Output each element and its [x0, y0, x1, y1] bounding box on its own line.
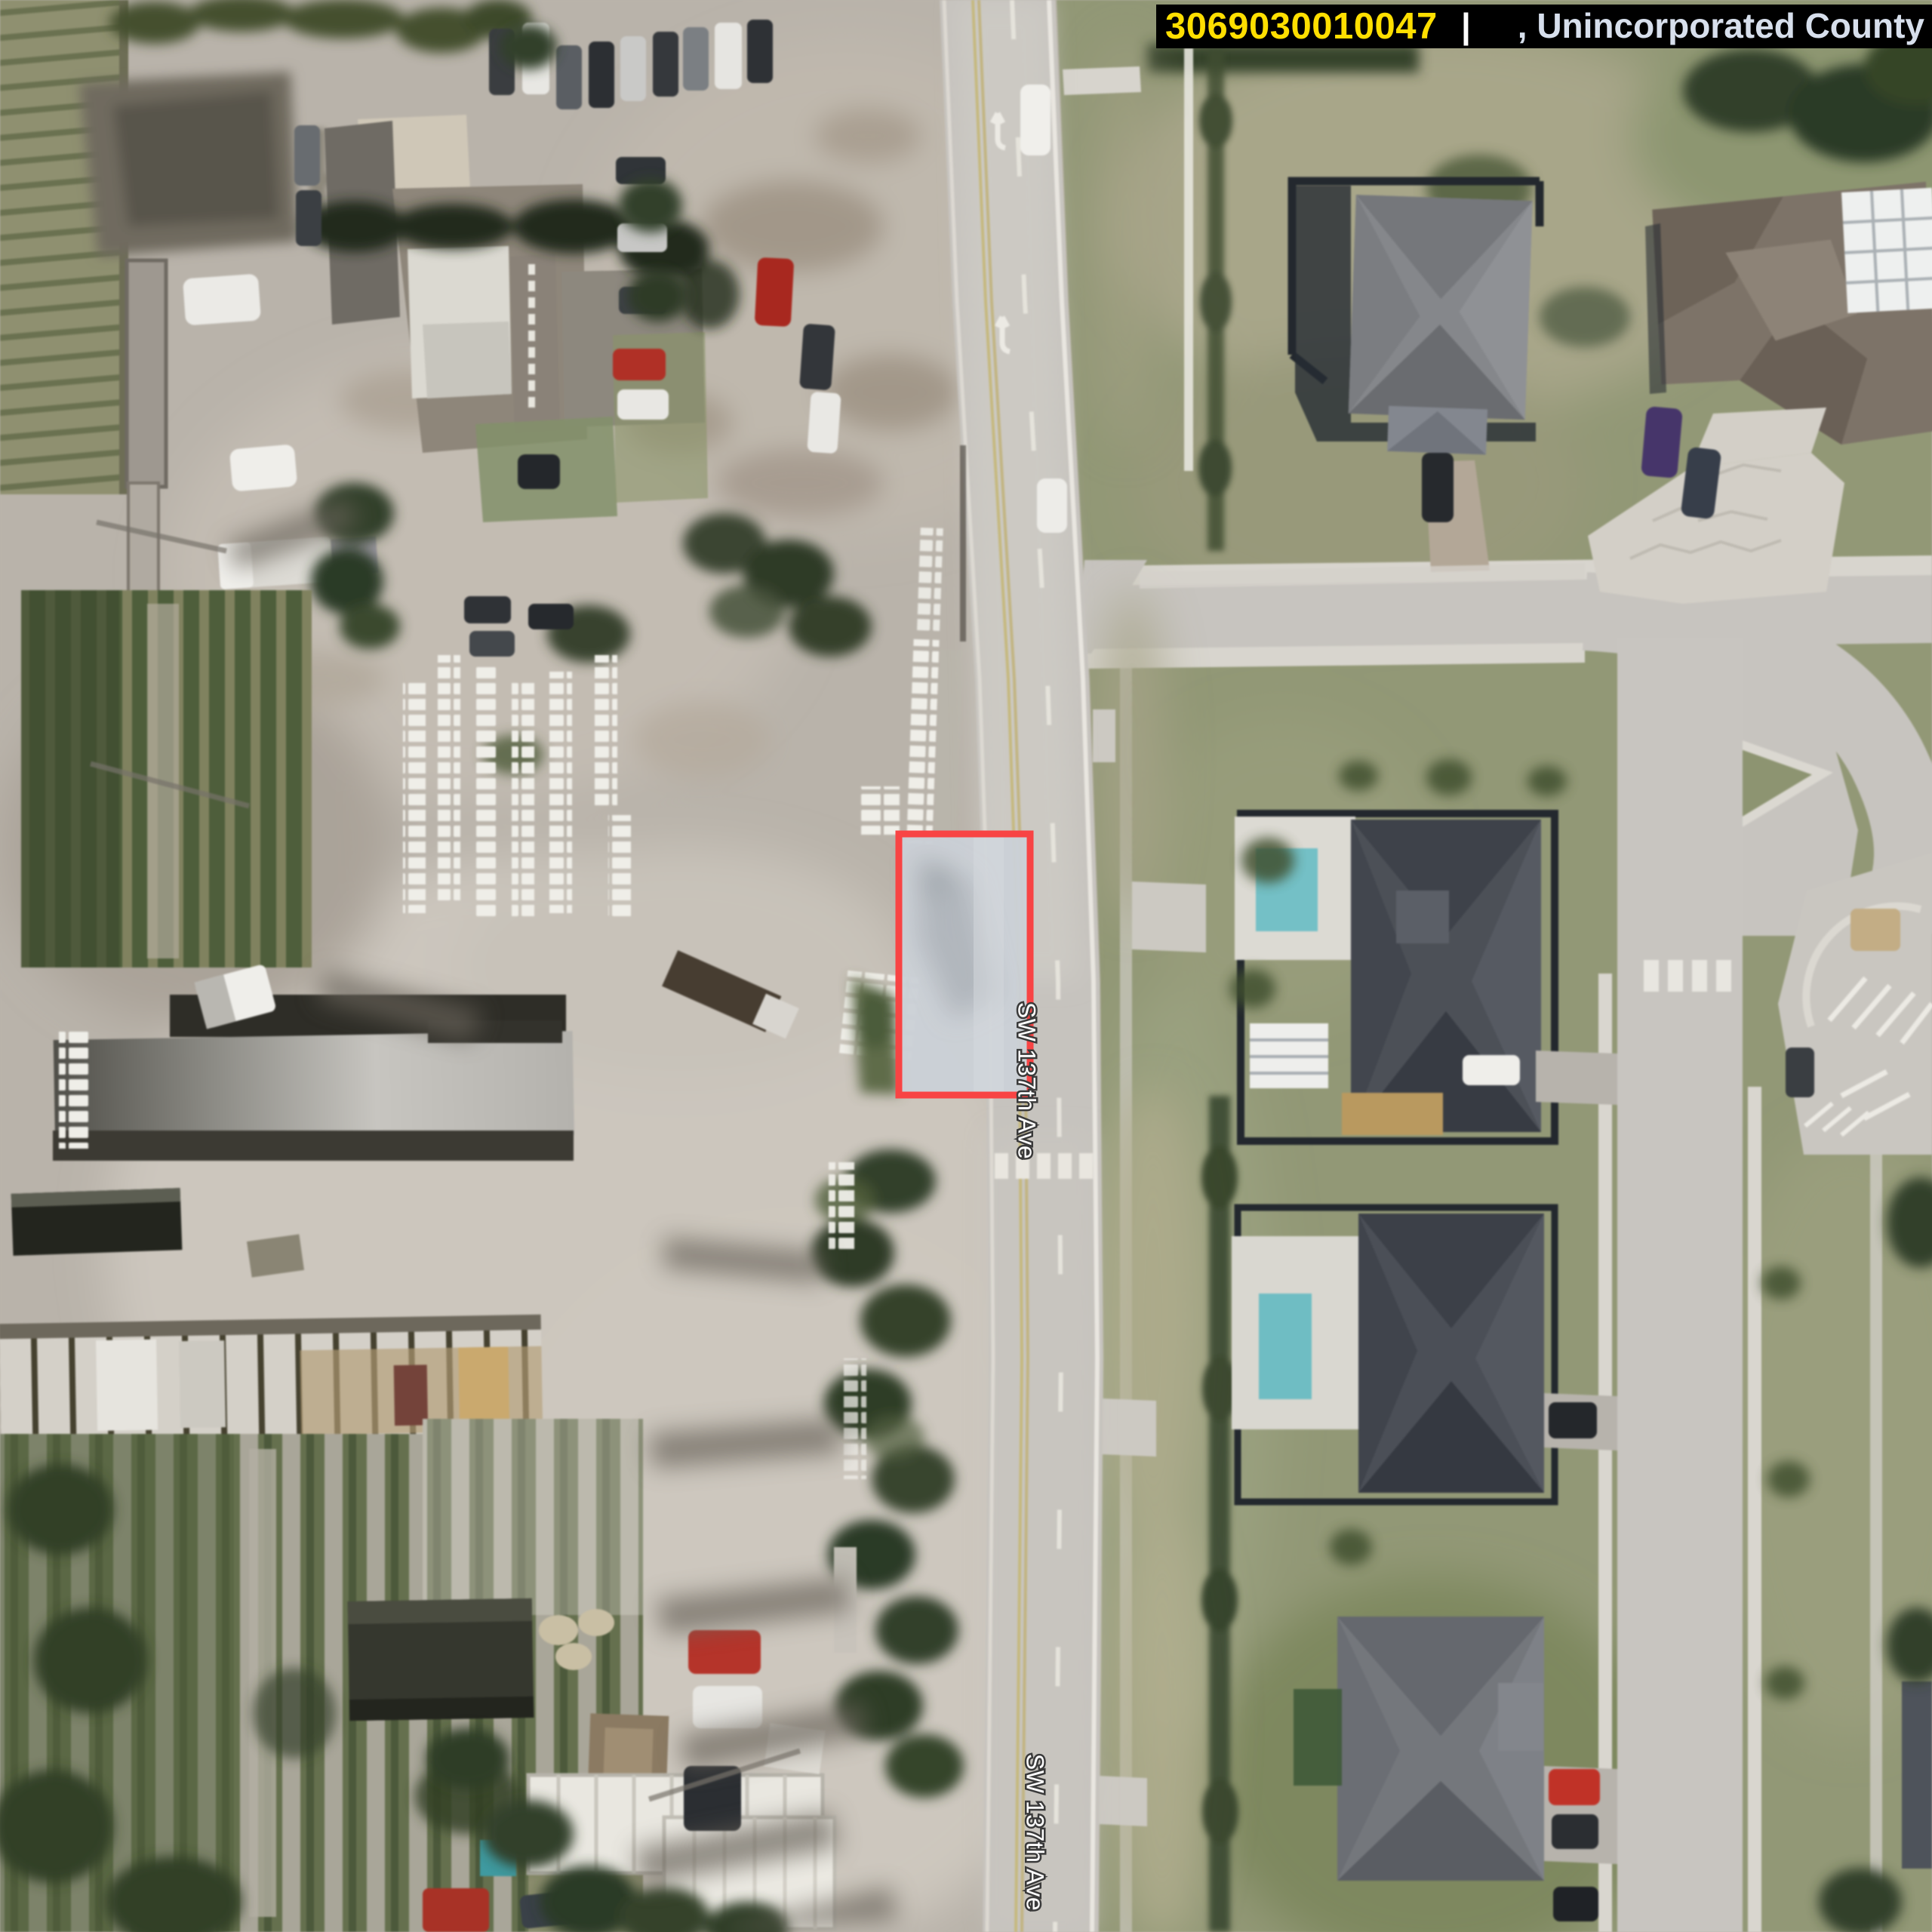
svg-text:3069030010047: 3069030010047 — [1165, 6, 1438, 47]
svg-text:|: | — [1461, 6, 1471, 45]
svg-text:SW 137th Ave: SW 137th Ave — [1022, 1754, 1049, 1911]
svg-text:, Unincorporated County: , Unincorporated County — [1518, 6, 1925, 45]
svg-text:SW 137th Ave: SW 137th Ave — [1014, 1002, 1041, 1159]
